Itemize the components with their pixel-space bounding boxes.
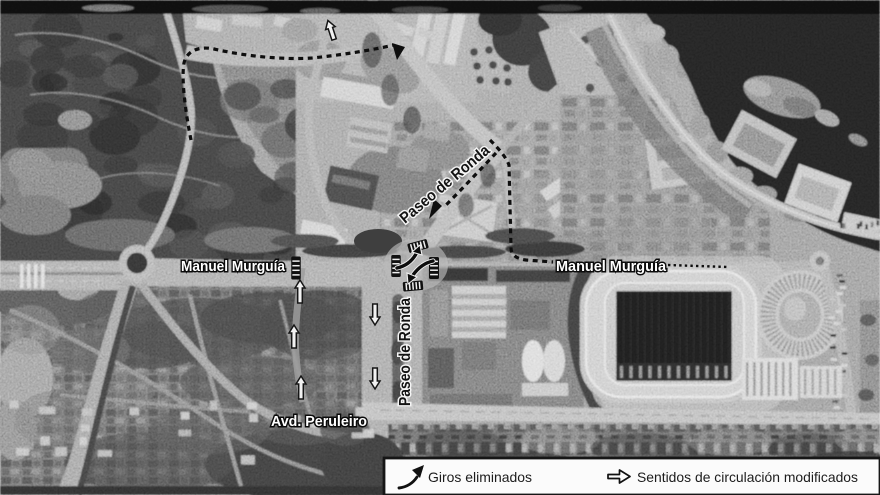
svg-text:Paseo de Ronda: Paseo de Ronda xyxy=(397,298,414,406)
svg-text:Sentidos de circulación modifi: Sentidos de circulación modificados xyxy=(637,469,858,485)
svg-text:Manuel Murguía: Manuel Murguía xyxy=(556,258,667,275)
svg-text:Giros eliminados: Giros eliminados xyxy=(428,469,532,485)
svg-text:Avd. Peruleiro: Avd. Peruleiro xyxy=(271,413,367,430)
svg-text:Manuel Murguía: Manuel Murguía xyxy=(181,258,286,275)
